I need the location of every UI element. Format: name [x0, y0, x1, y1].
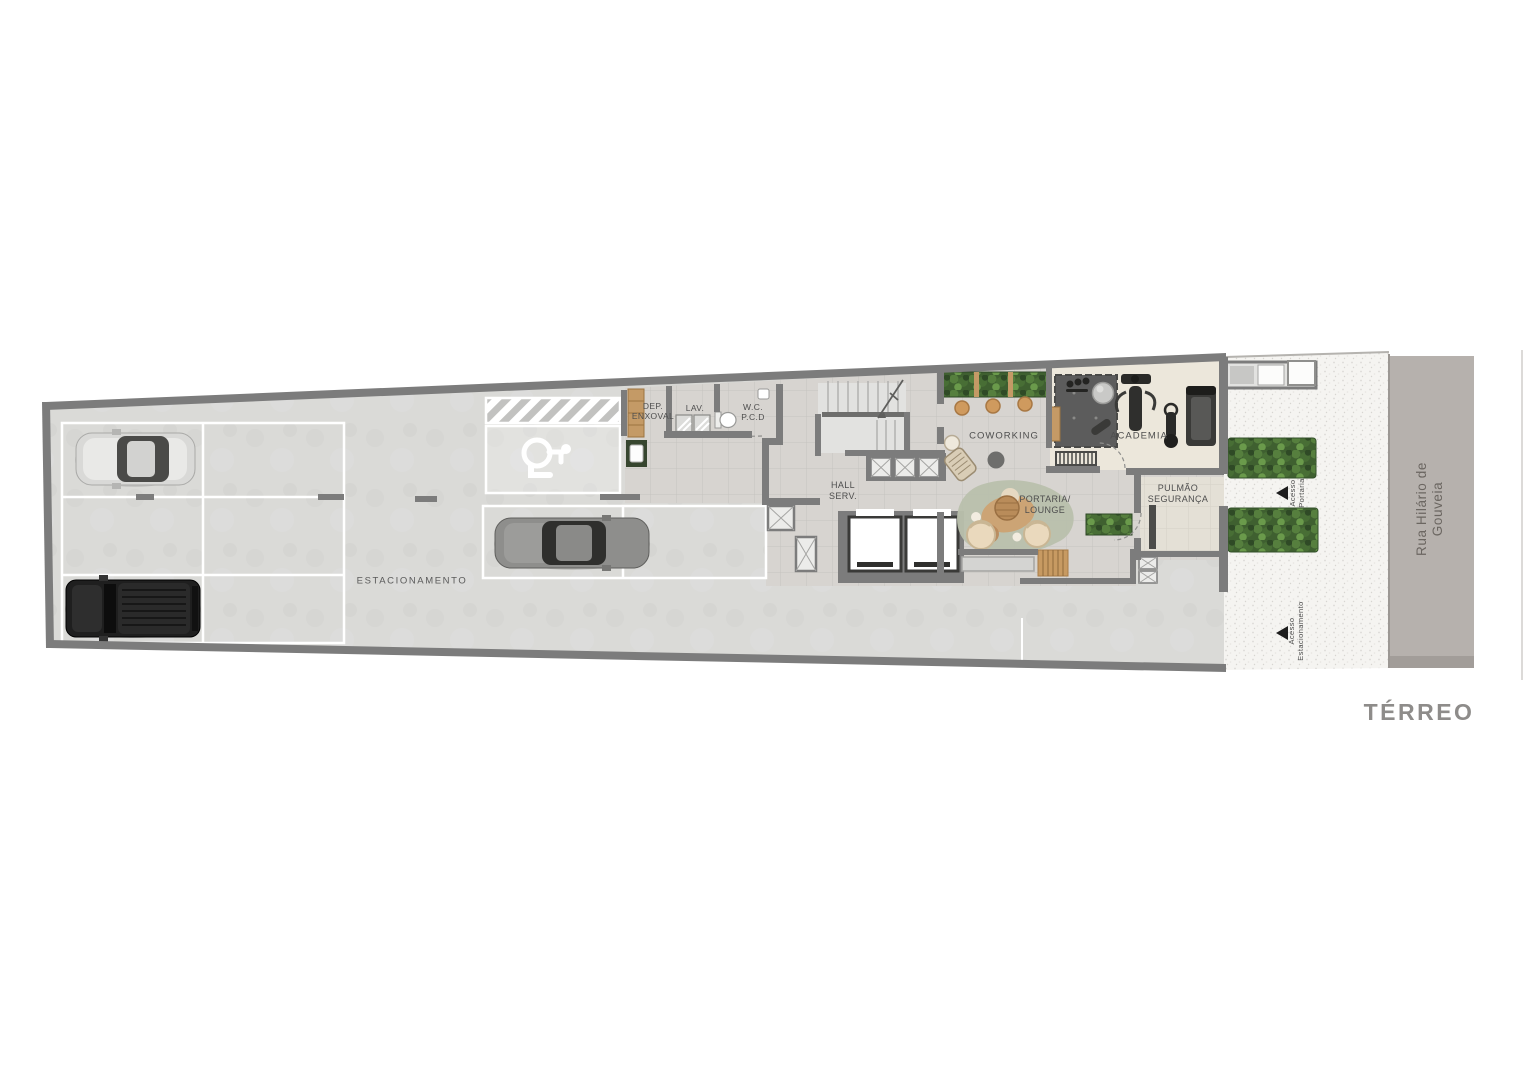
green-wall: [942, 372, 1048, 397]
car-gray: [494, 515, 650, 571]
no-parking-hatch: [486, 398, 620, 423]
label-street-name: Rua Hilário de Gouveia: [1414, 461, 1446, 558]
car-silver: [75, 429, 195, 489]
label-estacionamento: ESTACIONAMENTO: [357, 575, 468, 586]
label-wc-pcd: W.C. P.C.D: [741, 402, 765, 422]
label-hall-serv: HALL SERV.: [829, 480, 857, 502]
bench: [962, 557, 1034, 571]
label-coworking: COWORKING: [969, 430, 1039, 441]
bar-stool: [986, 399, 1000, 413]
stair-floor: [818, 383, 906, 453]
laundry-sink: [630, 445, 643, 462]
label-acesso-portaria: Acesso Portaria: [1288, 478, 1306, 507]
right-wall-lower: [1219, 506, 1228, 592]
wood-deck-steps: [1038, 550, 1068, 576]
parking-space-pcd: [486, 426, 620, 493]
car-suv-dark: [65, 575, 201, 642]
label-portaria-lounge: PORTARIA/ LOUNGE: [1019, 494, 1070, 516]
street-end-cap: [1389, 656, 1474, 668]
turnstile-gate: [1149, 505, 1156, 549]
coffee-table: [988, 452, 1005, 469]
floor-title: TÉRREO: [1364, 699, 1475, 727]
page-edge-line: [1521, 350, 1523, 680]
label-dep-enxoval: DEP. ENXOVAL: [632, 401, 674, 421]
label-lav: LAV.: [686, 403, 705, 413]
wc-sink: [758, 389, 769, 399]
planter-boxes: [1226, 361, 1316, 388]
hedge-lower: [1228, 508, 1318, 552]
label-academia: ACADEMIA: [1110, 430, 1168, 441]
lounge-planter: [1086, 514, 1132, 535]
treadmill: [1186, 386, 1216, 446]
exercise-ball: [1093, 383, 1114, 404]
floor-plan-page: DEP. ENXOVAL LAV. W.C. P.C.D HALL SERV. …: [0, 0, 1527, 1080]
toilet: [715, 412, 736, 428]
floor-plan-drawing: [0, 0, 1527, 1080]
right-wall-upper: [1219, 357, 1228, 474]
armchair: [967, 521, 995, 549]
label-acesso-estacionamento: Acesso Estacionamento: [1287, 601, 1305, 660]
bar-stool: [1018, 397, 1032, 411]
label-pulmao-seguranca: PULMÃO SEGURANÇA: [1148, 483, 1209, 505]
elevator-bank: [838, 509, 964, 583]
bar-stool: [955, 401, 969, 415]
hedge-upper: [1228, 438, 1316, 478]
